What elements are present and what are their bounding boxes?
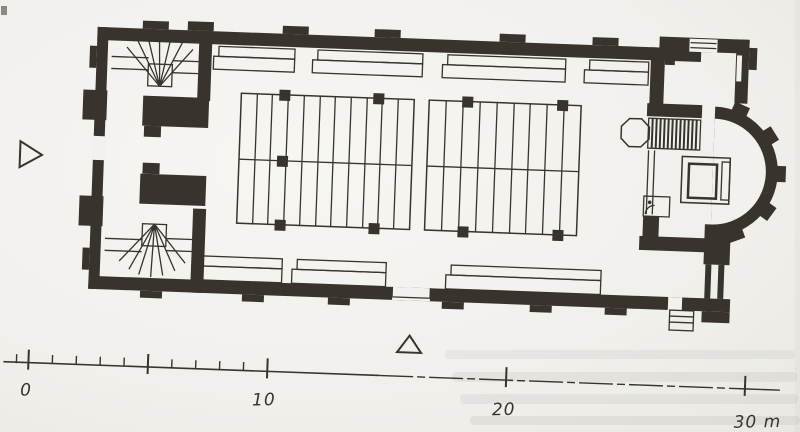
gallery-strip: [442, 65, 565, 82]
scale-tick: [267, 358, 268, 378]
vestry-wall-slit: [736, 55, 742, 81]
chancel-steps: [648, 118, 701, 150]
chancel-south-wall: [642, 216, 659, 239]
vestry-step-detail: [665, 51, 683, 59]
chancel-steps-hatching: [652, 118, 697, 150]
pilaster: [283, 26, 309, 35]
pilaster: [499, 34, 525, 43]
west-entrance-arrow-icon: [20, 141, 43, 168]
column: [368, 223, 379, 234]
column: [457, 226, 468, 237]
edge-shadow: [795, 0, 800, 432]
west-portal-pier: [82, 89, 107, 120]
chancel-stair-pier: [647, 103, 702, 118]
se-door-opening: [668, 297, 682, 311]
exterior-steps-outline: [669, 310, 694, 331]
scanned-floor-plan-page: 0 10 20 30 m: [0, 0, 800, 432]
pew-block-west: [237, 93, 415, 229]
south-entrance-arrow-icon: [397, 335, 422, 353]
pilaster: [82, 248, 90, 270]
column: [274, 220, 285, 231]
pilaster: [328, 298, 350, 306]
scale-label-10: 10: [252, 390, 276, 410]
column: [277, 156, 288, 167]
pilaster: [188, 21, 214, 31]
pew-aisle-line: [239, 159, 412, 165]
scale-line: [3, 362, 379, 376]
plan-sheet: 0 10 20 30 m: [2, 13, 796, 432]
pilaster: [143, 21, 169, 30]
scale-tick: [745, 376, 746, 396]
nw-tower-east-wall: [197, 31, 213, 101]
pilaster: [89, 46, 97, 68]
pilaster: [605, 308, 627, 316]
passage-wall: [704, 264, 711, 298]
scale-label-30: 30 m: [733, 412, 781, 432]
exterior-steps-treads: [669, 316, 693, 323]
pilaster: [140, 291, 162, 299]
pulpit-octagon: [621, 118, 650, 147]
vestibule-north-pier: [144, 126, 161, 138]
pilaster: [442, 302, 464, 310]
scale-line-end: [745, 389, 780, 390]
pilaster: [242, 294, 264, 302]
gallery-strip: [291, 269, 385, 286]
pew-rows: [253, 94, 399, 229]
south-door-opening: [392, 287, 430, 301]
gallery-strip: [213, 56, 294, 72]
pilaster: [375, 29, 401, 38]
pilaster: [592, 37, 618, 46]
southeast-pier-base: [701, 311, 729, 323]
vestibule-south-pier: [142, 163, 159, 175]
sw-winder-staircase: [104, 222, 193, 278]
pew-block-outline: [237, 93, 415, 229]
column: [552, 230, 563, 241]
chancel-south-bar: [639, 236, 707, 252]
chancel-north-wall: [649, 47, 665, 105]
scale-tick: [506, 367, 507, 387]
pew-block-east: [425, 100, 582, 235]
column: [373, 93, 384, 104]
gallery-strip: [584, 70, 648, 85]
pew-aisle-line: [427, 166, 579, 172]
column: [557, 100, 568, 111]
west-portal-pier: [78, 195, 103, 226]
scan-artifacts: [1, 0, 800, 432]
scan-speck: [1, 6, 7, 15]
column: [462, 96, 473, 107]
passage-wall: [717, 265, 724, 299]
exterior-steps: [669, 310, 694, 331]
church-walls: [76, 15, 758, 323]
northeast-pier: [749, 48, 758, 70]
vestry-step-detail: [665, 58, 675, 65]
scale-tick: [148, 354, 149, 374]
floor-plan-svg: 0 10 20 30 m: [0, 0, 800, 432]
vestry-top-opening: [689, 39, 717, 53]
gallery-strip: [312, 60, 422, 77]
vestibule-north-pier: [142, 96, 209, 128]
ghost-band: [445, 350, 795, 359]
font-dot: [648, 200, 652, 204]
column: [279, 90, 290, 101]
pilaster: [530, 305, 552, 313]
pew-block-outline: [425, 100, 582, 235]
scale-label-0: 0: [20, 380, 32, 400]
scale-label-20: 20: [492, 400, 516, 420]
gallery-strip: [198, 266, 282, 283]
chancel-screen-line: [646, 150, 654, 214]
scale-tick: [28, 350, 29, 370]
apse-buttress: [772, 166, 787, 183]
nave-columns: [274, 90, 568, 241]
vestibule-south-pier: [139, 174, 206, 206]
west-door-opening: [91, 136, 107, 161]
